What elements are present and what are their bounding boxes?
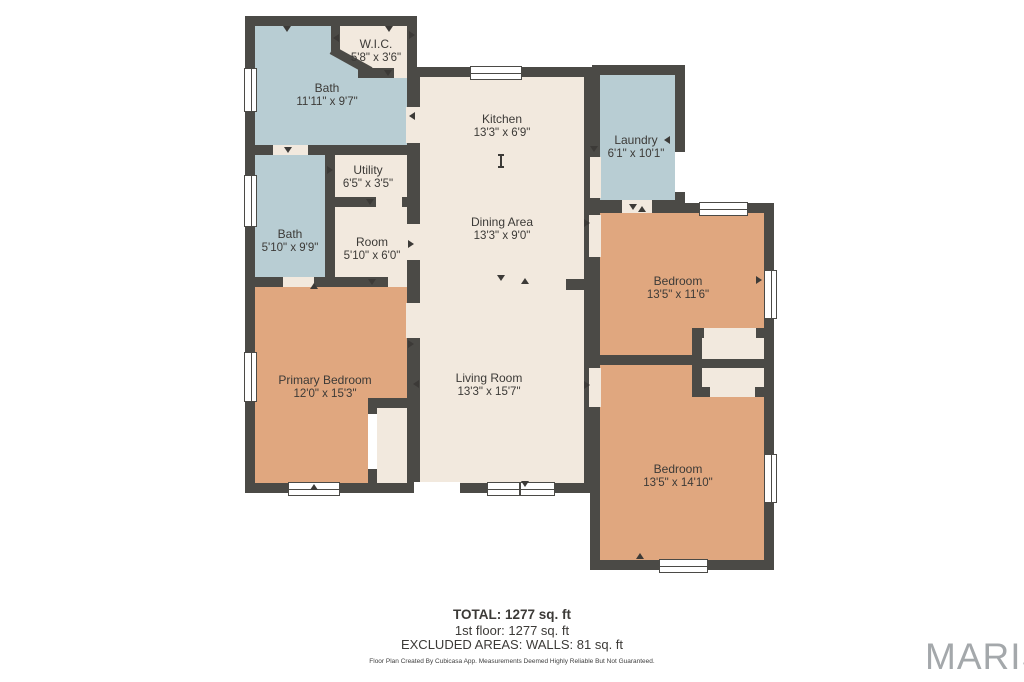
closet-bedroom-1-opening — [704, 328, 756, 338]
door-opening-laundry-exterior — [675, 152, 685, 192]
closet-primary-bedroom — [377, 408, 407, 483]
door-marker-icon — [310, 484, 318, 490]
window — [244, 352, 257, 402]
kitchen-fixture-icon — [498, 154, 504, 168]
window — [659, 559, 708, 573]
window — [764, 270, 777, 319]
door-marker-icon — [408, 240, 414, 248]
door-marker-icon — [629, 204, 637, 210]
door-marker-icon — [584, 219, 590, 227]
door-opening-room-primary — [388, 277, 407, 287]
window — [244, 175, 257, 227]
closet-bedroom-2 — [702, 368, 764, 387]
door-marker-icon — [385, 26, 393, 32]
closet-primary-opening — [368, 414, 377, 469]
door-opening-primary-bedroom — [406, 303, 421, 338]
door-marker-icon — [413, 380, 419, 388]
door-marker-icon — [366, 199, 374, 205]
door-marker-icon — [409, 31, 415, 39]
door-marker-icon — [408, 340, 414, 348]
door-opening-laundry-bedroom — [622, 200, 652, 213]
window — [699, 202, 748, 216]
door-marker-icon — [384, 70, 392, 76]
room-area-utility — [335, 155, 407, 197]
room-area-bedroom-2-upper — [600, 365, 692, 397]
door-marker-icon — [327, 166, 333, 174]
door-marker-icon — [368, 279, 376, 285]
door-marker-icon — [284, 147, 292, 153]
door-marker-icon — [638, 206, 646, 212]
disclaimer-text: Floor Plan Created By Cubicasa App. Meas… — [0, 658, 1024, 665]
first-floor-area-text: 1st floor: 1277 sq. ft — [0, 623, 1024, 638]
door-marker-icon — [310, 283, 318, 289]
door-marker-icon — [333, 34, 339, 42]
door-opening-laundry — [590, 157, 601, 198]
door-marker-icon — [409, 112, 415, 120]
excluded-areas-text: EXCLUDED AREAS: WALLS: 81 sq. ft — [0, 637, 1024, 652]
floor-plan-page: { "palette": { "bg": "#ffffff", "wall": … — [0, 0, 1024, 682]
door-marker-icon — [636, 553, 644, 559]
door-marker-icon — [756, 276, 762, 284]
window — [764, 454, 777, 503]
door-opening-utility — [376, 197, 402, 207]
room-area-bedroom-2 — [600, 397, 764, 560]
window — [244, 68, 257, 112]
total-area-text: TOTAL: 1277 sq. ft — [0, 607, 1024, 622]
window — [487, 482, 520, 496]
wall-stub-dining-living — [566, 279, 592, 290]
closet-bedroom-2-opening — [710, 387, 755, 397]
door-marker-icon — [497, 275, 505, 281]
maris-logo: MARIS — [925, 636, 1024, 678]
door-opening-entry — [414, 482, 460, 494]
door-opening-wic — [394, 68, 407, 78]
room-area-room — [335, 207, 407, 277]
door-marker-icon — [664, 136, 670, 144]
wall-primary-closet-top — [368, 398, 407, 408]
room-area-bedroom-1 — [600, 213, 764, 328]
door-opening-bedroom-2 — [589, 368, 601, 407]
door-marker-icon — [590, 146, 598, 152]
door-marker-icon — [521, 481, 529, 487]
room-area-bath-2 — [255, 155, 325, 277]
window — [470, 66, 522, 80]
room-area-bedroom-1-lower — [600, 328, 692, 355]
door-marker-icon — [584, 381, 590, 389]
door-marker-icon — [521, 278, 529, 284]
door-marker-icon — [283, 26, 291, 32]
closet-bedroom-1 — [702, 338, 764, 359]
door-opening-bedroom-1 — [589, 215, 601, 257]
